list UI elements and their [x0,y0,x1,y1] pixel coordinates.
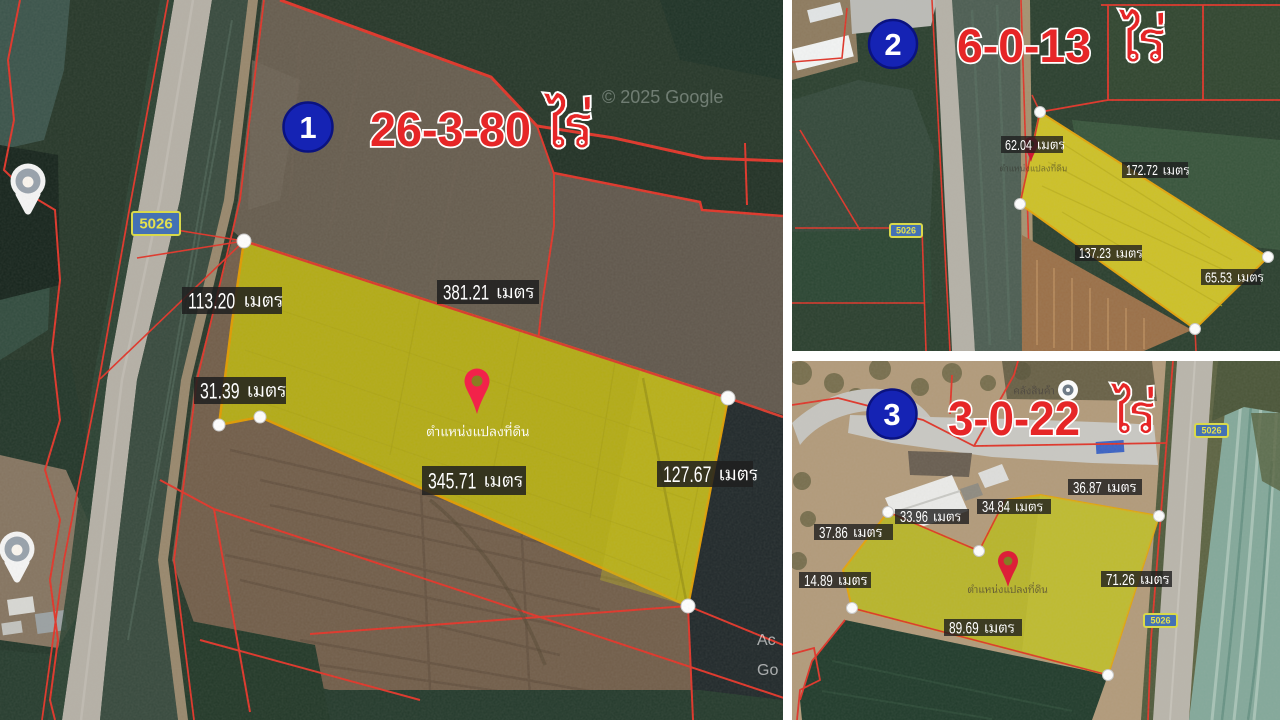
svg-text:Go: Go [757,662,778,679]
svg-text:6-0-13: 6-0-13 [957,19,1091,72]
svg-text:33.96: 33.96 [900,508,928,525]
svg-text:Ac: Ac [757,632,776,649]
svg-text:5026: 5026 [1201,425,1221,435]
svg-text:127.67: 127.67 [663,464,711,488]
svg-text:26-3-80: 26-3-80 [370,104,531,157]
svg-text:3: 3 [883,397,900,432]
svg-text:37.86: 37.86 [819,523,848,541]
svg-text:345.71: 345.71 [428,470,476,494]
svg-text:381.21: 381.21 [443,280,489,304]
svg-text:14.89: 14.89 [804,571,833,589]
svg-text:36.87: 36.87 [1073,478,1102,496]
svg-text:5026: 5026 [1150,615,1170,625]
svg-text:2: 2 [884,27,901,62]
svg-text:172.72: 172.72 [1126,163,1158,179]
svg-text:137.23: 137.23 [1079,246,1111,262]
svg-text:1: 1 [299,110,316,145]
svg-text:89.69: 89.69 [949,620,979,638]
svg-text:62.04: 62.04 [1005,136,1032,153]
svg-text:65.53: 65.53 [1205,269,1232,286]
svg-text:5026: 5026 [896,225,916,235]
svg-text:113.20: 113.20 [188,290,235,314]
svg-text:34.84: 34.84 [982,498,1010,515]
svg-text:© 2025 Google: © 2025 Google [602,87,723,107]
svg-text:31.39: 31.39 [200,380,240,404]
svg-text:71.26: 71.26 [1106,570,1135,588]
svg-text:3-0-22: 3-0-22 [948,393,1080,446]
svg-text:5026: 5026 [139,216,172,233]
